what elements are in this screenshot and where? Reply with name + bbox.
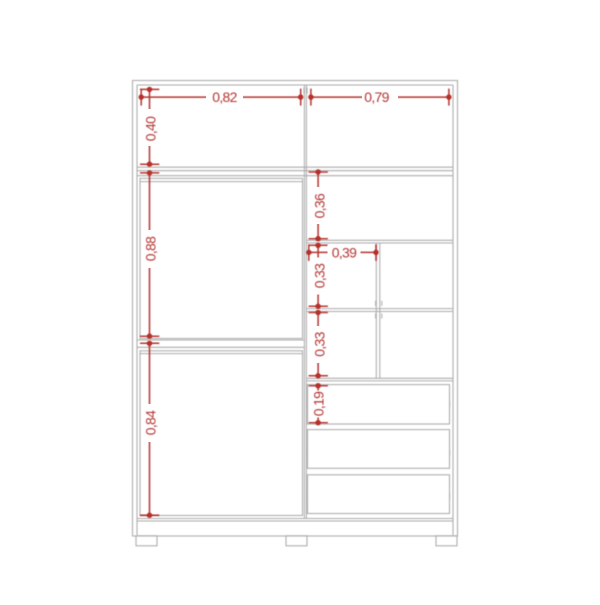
svg-text:0,40: 0,40 bbox=[143, 116, 159, 141]
svg-text:0,36: 0,36 bbox=[311, 193, 327, 218]
svg-text:0,84: 0,84 bbox=[143, 410, 159, 435]
svg-text:0,79: 0,79 bbox=[364, 89, 389, 105]
svg-text:0,82: 0,82 bbox=[212, 89, 237, 105]
svg-text:0,88: 0,88 bbox=[143, 236, 159, 261]
svg-text:0,33: 0,33 bbox=[311, 263, 327, 288]
svg-text:0,19: 0,19 bbox=[310, 391, 326, 416]
svg-text:0,33: 0,33 bbox=[311, 331, 327, 356]
svg-text:0,39: 0,39 bbox=[332, 245, 357, 261]
